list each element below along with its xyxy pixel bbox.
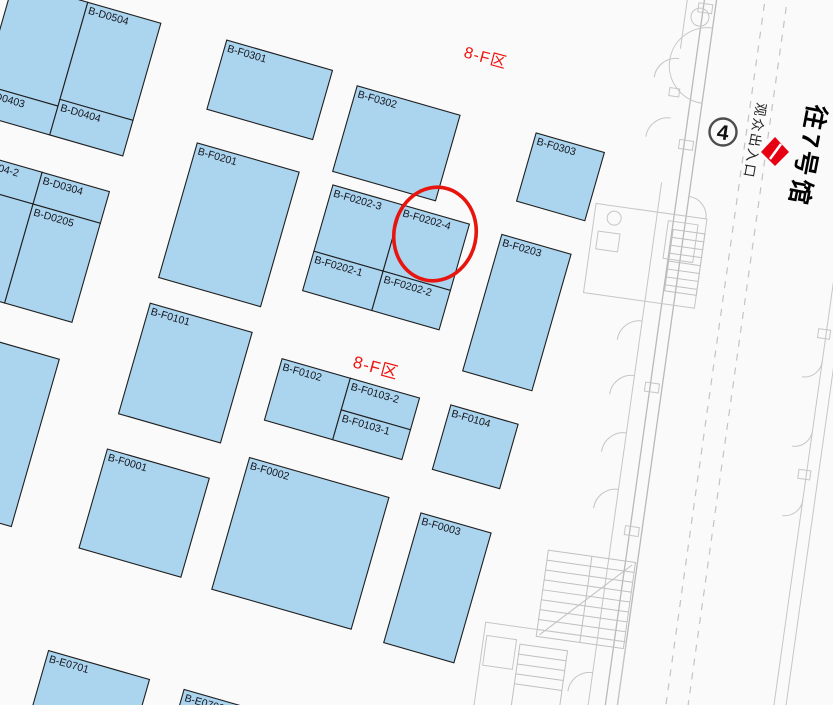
floorplan-canvas: B-D0504B-D0403B-D0404B-D0304-2B-D0304B-D… [0,0,833,705]
floorplan-svg: B-D0504B-D0403B-D0404B-D0304-2B-D0304B-D… [0,0,833,705]
